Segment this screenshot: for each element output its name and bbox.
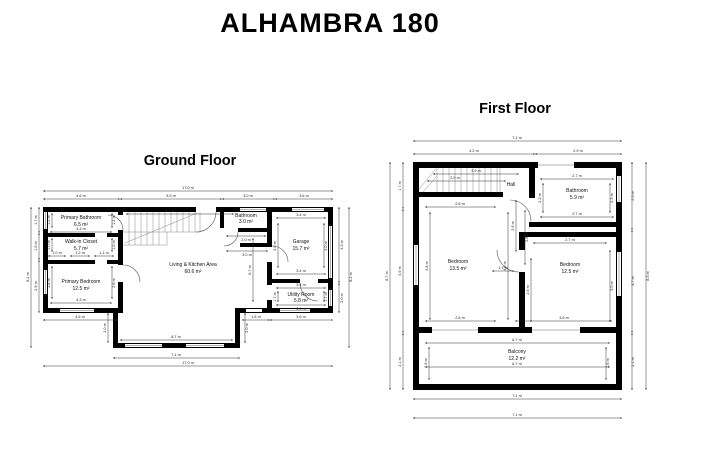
dim-label: 8.2 m [26, 272, 30, 282]
wall [574, 162, 622, 168]
dim-label: 1.0 m [52, 251, 62, 255]
room-name: Living & Kitchen Area [169, 262, 217, 268]
dim-label: 1.0 m [47, 240, 51, 250]
room-area: 5.7 m² [74, 246, 89, 252]
room-name: Bedroom [448, 259, 468, 265]
wall [529, 222, 622, 227]
dim-label: 1.8 m [251, 315, 261, 319]
dim-label: 6.7 m [248, 265, 252, 275]
wall [413, 192, 503, 197]
floor-plans-canvas: 17.0 m 4.6 m 5.9 m 3.0 m 3.6 m 8.2 m 1.7… [0, 0, 705, 470]
door-arc [123, 265, 140, 282]
wall [478, 327, 532, 333]
ground-floor-walls [43, 207, 333, 348]
dim-label: 4.8 m [425, 261, 429, 271]
wall [413, 384, 622, 390]
dim-label: 7.1 m [512, 136, 522, 140]
door-arc [196, 212, 216, 232]
wall [413, 162, 538, 168]
dim-label: 8.7 m [385, 271, 389, 281]
dim-label: 1.7 m [324, 292, 328, 302]
room-name: Primary Bathroom [61, 215, 101, 221]
entry-door-opening [196, 207, 216, 212]
dim-label: 4.2 m [469, 149, 479, 153]
dim-label: 1.0 m [112, 240, 116, 250]
wall [235, 308, 240, 348]
room-area: 6.5 m² [74, 222, 89, 228]
room-name: Hall [507, 182, 516, 188]
door-opening [246, 309, 262, 312]
dim-label: 2.0 m [340, 293, 344, 303]
dim-label: 4.3 m [76, 298, 86, 302]
dim-label: 3.9 m [471, 169, 481, 173]
first-floor-windows [414, 163, 621, 332]
first-floor-plan: 7.1 m 4.2 m 2.9 m 1.7 m 4.9 m 2.1 m 8.7 … [385, 136, 650, 418]
dim-label: 1.2 m [47, 215, 51, 225]
stairs [123, 212, 200, 245]
wall [240, 243, 272, 247]
dim-label: 2.7 m [565, 238, 575, 242]
dim-label: 7.1 m [512, 413, 522, 417]
dim-label: 6.7 m [165, 209, 175, 213]
stairs [419, 168, 500, 192]
wall [220, 207, 224, 228]
dim-label: 2.8 m [525, 232, 529, 242]
dim-label: 3.5 m [610, 281, 614, 291]
wall [118, 207, 123, 215]
dim-label: 3.6 m [296, 315, 306, 319]
room-name: Balcony [508, 349, 526, 355]
dim-label: 2.0 m [103, 323, 107, 333]
dim-label: 1.6 m [606, 358, 610, 368]
room-area: 5.8 m² [294, 298, 309, 304]
dim-label: 3.0 m [243, 194, 253, 198]
dim-label: 1.7 m [34, 215, 38, 225]
first-floor-dimensions: 7.1 m 4.2 m 2.9 m 1.7 m 4.9 m 2.1 m 8.7 … [385, 136, 650, 418]
dim-label: 7.1 m [512, 394, 522, 398]
room-area: 13.5 m² [450, 266, 467, 272]
dim-label: 2.6 m [455, 316, 465, 320]
wall [267, 300, 272, 313]
dim-label: 3.0 m [242, 253, 252, 257]
room-name: Garage [293, 239, 310, 245]
floor-plan-page: ALHAMBRA 180 Ground Floor First Floor [0, 0, 705, 470]
dim-label: 17.0 m [182, 186, 194, 190]
dim-label: 2.3 m [610, 193, 614, 203]
ground-floor-plan: 17.0 m 4.6 m 5.9 m 3.0 m 3.6 m 8.2 m 1.7… [26, 186, 353, 366]
dim-label: 1.2 m [112, 215, 116, 225]
dim-label: 4.0 m [324, 241, 328, 251]
dim-label: 4.6 m [76, 194, 86, 198]
room-name: Bedroom [560, 262, 580, 268]
dim-label: 2.0 m [245, 323, 249, 333]
dim-label: 3.7 m [631, 276, 635, 286]
dim-label: 2.9 m [526, 285, 530, 295]
dim-label: 1.6 m [34, 241, 38, 251]
dim-label: 1.1 m [99, 251, 109, 255]
wall [118, 282, 123, 313]
dim-label: 8.7 m [171, 335, 181, 339]
room-area: 5.9 m² [570, 195, 585, 201]
dim-label: 2.1 m [631, 357, 635, 367]
dim-label: 2.9 m [573, 149, 583, 153]
dim-label: 2.6 m [455, 202, 465, 206]
dim-label: 2.8 m [47, 278, 51, 288]
wall [43, 207, 333, 212]
dim-label: 3.4 m [296, 269, 306, 273]
door-arc [510, 200, 531, 221]
ground-floor-doors [108, 212, 318, 301]
wall [529, 162, 535, 198]
wall [267, 207, 272, 245]
wall [113, 308, 118, 348]
dim-label: 3.6 m [299, 194, 309, 198]
room-area: 60.6 m² [185, 269, 202, 275]
dim-label: 1.1 m [498, 266, 508, 270]
dim-label: 6.7 m [512, 338, 522, 342]
room-name: Walk-in Closet [65, 239, 98, 245]
wall [107, 260, 123, 264]
dim-label: 17.0 m [182, 361, 194, 365]
dim-label: 4.9 m [398, 266, 402, 276]
dim-label: 2.9 m [450, 176, 460, 180]
dim-label: 2.0 m [241, 238, 251, 242]
dim-label: 2.7 m [572, 212, 582, 216]
dim-label: 1.6 m [424, 358, 428, 368]
dim-label: 5.9 m [166, 194, 176, 198]
wall [580, 327, 622, 333]
dim-label: 2.9 m [511, 221, 515, 231]
ground-floor-windows [44, 207, 332, 347]
dim-label: 1.7 m [398, 181, 402, 191]
room-area: 3.0 m² [239, 219, 254, 225]
dim-label: 8.2 m [349, 272, 353, 282]
dim-label: 1.7 m [273, 292, 277, 302]
dim-label: 7.1 m [171, 353, 181, 357]
dim-label: 3.6 m [559, 316, 569, 320]
wall [318, 279, 333, 283]
dim-label: 4.6 m [75, 315, 85, 319]
ground-floor-room-labels: Primary Bathroom 6.5 m² Walk-in Closet 5… [61, 213, 315, 304]
wall [267, 279, 300, 283]
wall [519, 232, 622, 237]
dim-label: 2.8 m [112, 278, 116, 288]
wall [43, 260, 95, 264]
dim-label: 3.4 m [296, 307, 306, 311]
dim-label: 2.9 m [34, 281, 38, 291]
dim-label: 4.3 m [340, 240, 344, 250]
dim-label: 3.4 m [296, 283, 306, 287]
room-name: Primary Bedroom [62, 279, 101, 285]
dim-label: 3.4 m [296, 213, 306, 217]
dim-label: 8.3 m [646, 271, 650, 281]
dim-label: 4.0 m [273, 241, 277, 251]
dim-label: 6.7 m [512, 362, 522, 366]
door-arc [224, 232, 238, 246]
room-name: Bathroom [566, 188, 588, 194]
ground-floor-dimensions: 17.0 m 4.6 m 5.9 m 3.0 m 3.6 m 8.2 m 1.7… [26, 186, 353, 366]
wall [413, 327, 432, 333]
room-area: 12.2 m² [509, 356, 526, 362]
room-area: 12.5 m² [562, 269, 579, 275]
room-area: 15.7 m² [293, 246, 310, 252]
wall [238, 228, 272, 232]
dim-label: 2.5 m [631, 191, 635, 201]
dim-label: 2.7 m [572, 174, 582, 178]
wall [107, 233, 123, 237]
dim-label: 2.1 m [398, 357, 402, 367]
wall [43, 233, 95, 237]
wall [519, 272, 525, 327]
room-area: 12.5 m² [73, 286, 90, 292]
dim-label: 2.2 m [538, 193, 542, 203]
